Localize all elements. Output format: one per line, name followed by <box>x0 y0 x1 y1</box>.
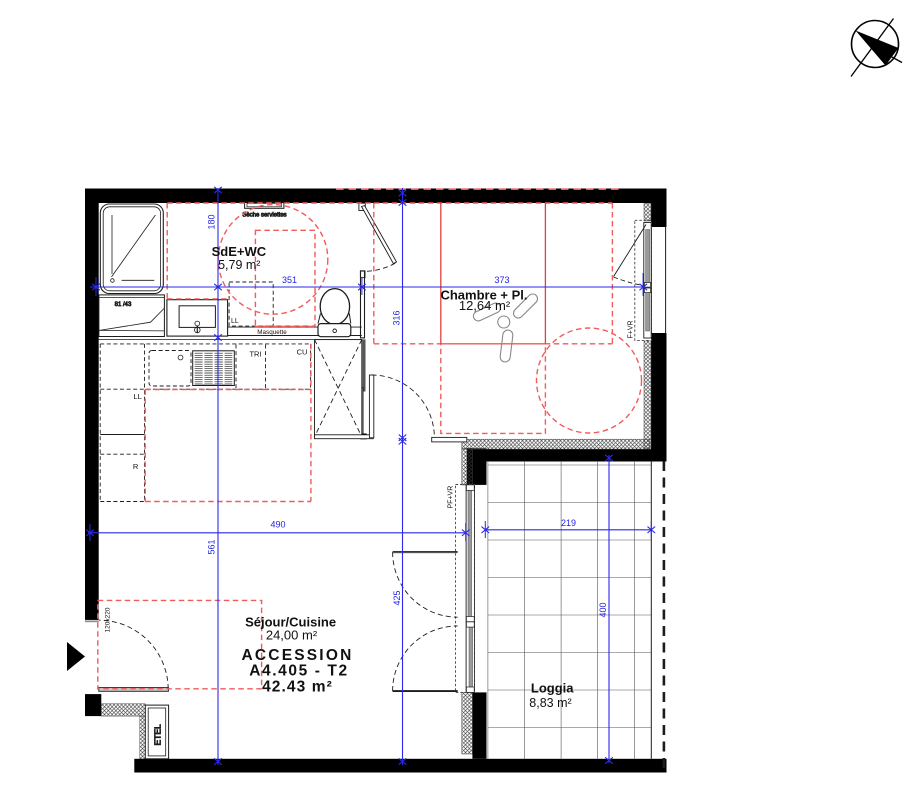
svg-text:Masquette: Masquette <box>257 329 287 336</box>
svg-text:A4.405 - T2: A4.405 - T2 <box>249 663 348 680</box>
svg-text:180: 180 <box>207 214 217 229</box>
svg-text:400: 400 <box>598 602 608 617</box>
svg-text:PF+VR: PF+VR <box>448 486 455 509</box>
svg-text:ACCESSION: ACCESSION <box>242 647 354 664</box>
svg-text:490: 490 <box>270 519 285 529</box>
svg-text:LL: LL <box>133 392 141 401</box>
svg-text:219: 219 <box>561 518 576 528</box>
svg-text:LL: LL <box>231 318 239 325</box>
svg-text:351: 351 <box>282 275 297 285</box>
svg-text:ETEL: ETEL <box>153 724 163 746</box>
svg-text:425: 425 <box>392 590 402 605</box>
svg-text:TRI: TRI <box>249 350 261 359</box>
svg-text:F+VR: F+VR <box>628 320 635 338</box>
svg-text:Sèche serviettes: Sèche serviettes <box>242 213 286 219</box>
svg-text:Loggia: Loggia <box>531 681 574 696</box>
svg-text:5,79 m²: 5,79 m² <box>218 258 260 272</box>
svg-text:42.43 m²: 42.43 m² <box>262 679 333 696</box>
svg-text:8,83 m²: 8,83 m² <box>529 696 571 710</box>
svg-text:24,00 m²: 24,00 m² <box>266 628 318 643</box>
svg-text:120x220: 120x220 <box>105 607 112 632</box>
svg-text:373: 373 <box>494 275 509 285</box>
svg-text:561: 561 <box>207 539 217 554</box>
svg-text:81 /43: 81 /43 <box>115 302 132 308</box>
svg-text:SdE+WC: SdE+WC <box>212 244 267 259</box>
svg-text:CU: CU <box>297 348 308 357</box>
svg-text:316: 316 <box>392 310 402 325</box>
svg-text:12,64 m²: 12,64 m² <box>459 298 511 313</box>
svg-text:R: R <box>133 462 139 471</box>
